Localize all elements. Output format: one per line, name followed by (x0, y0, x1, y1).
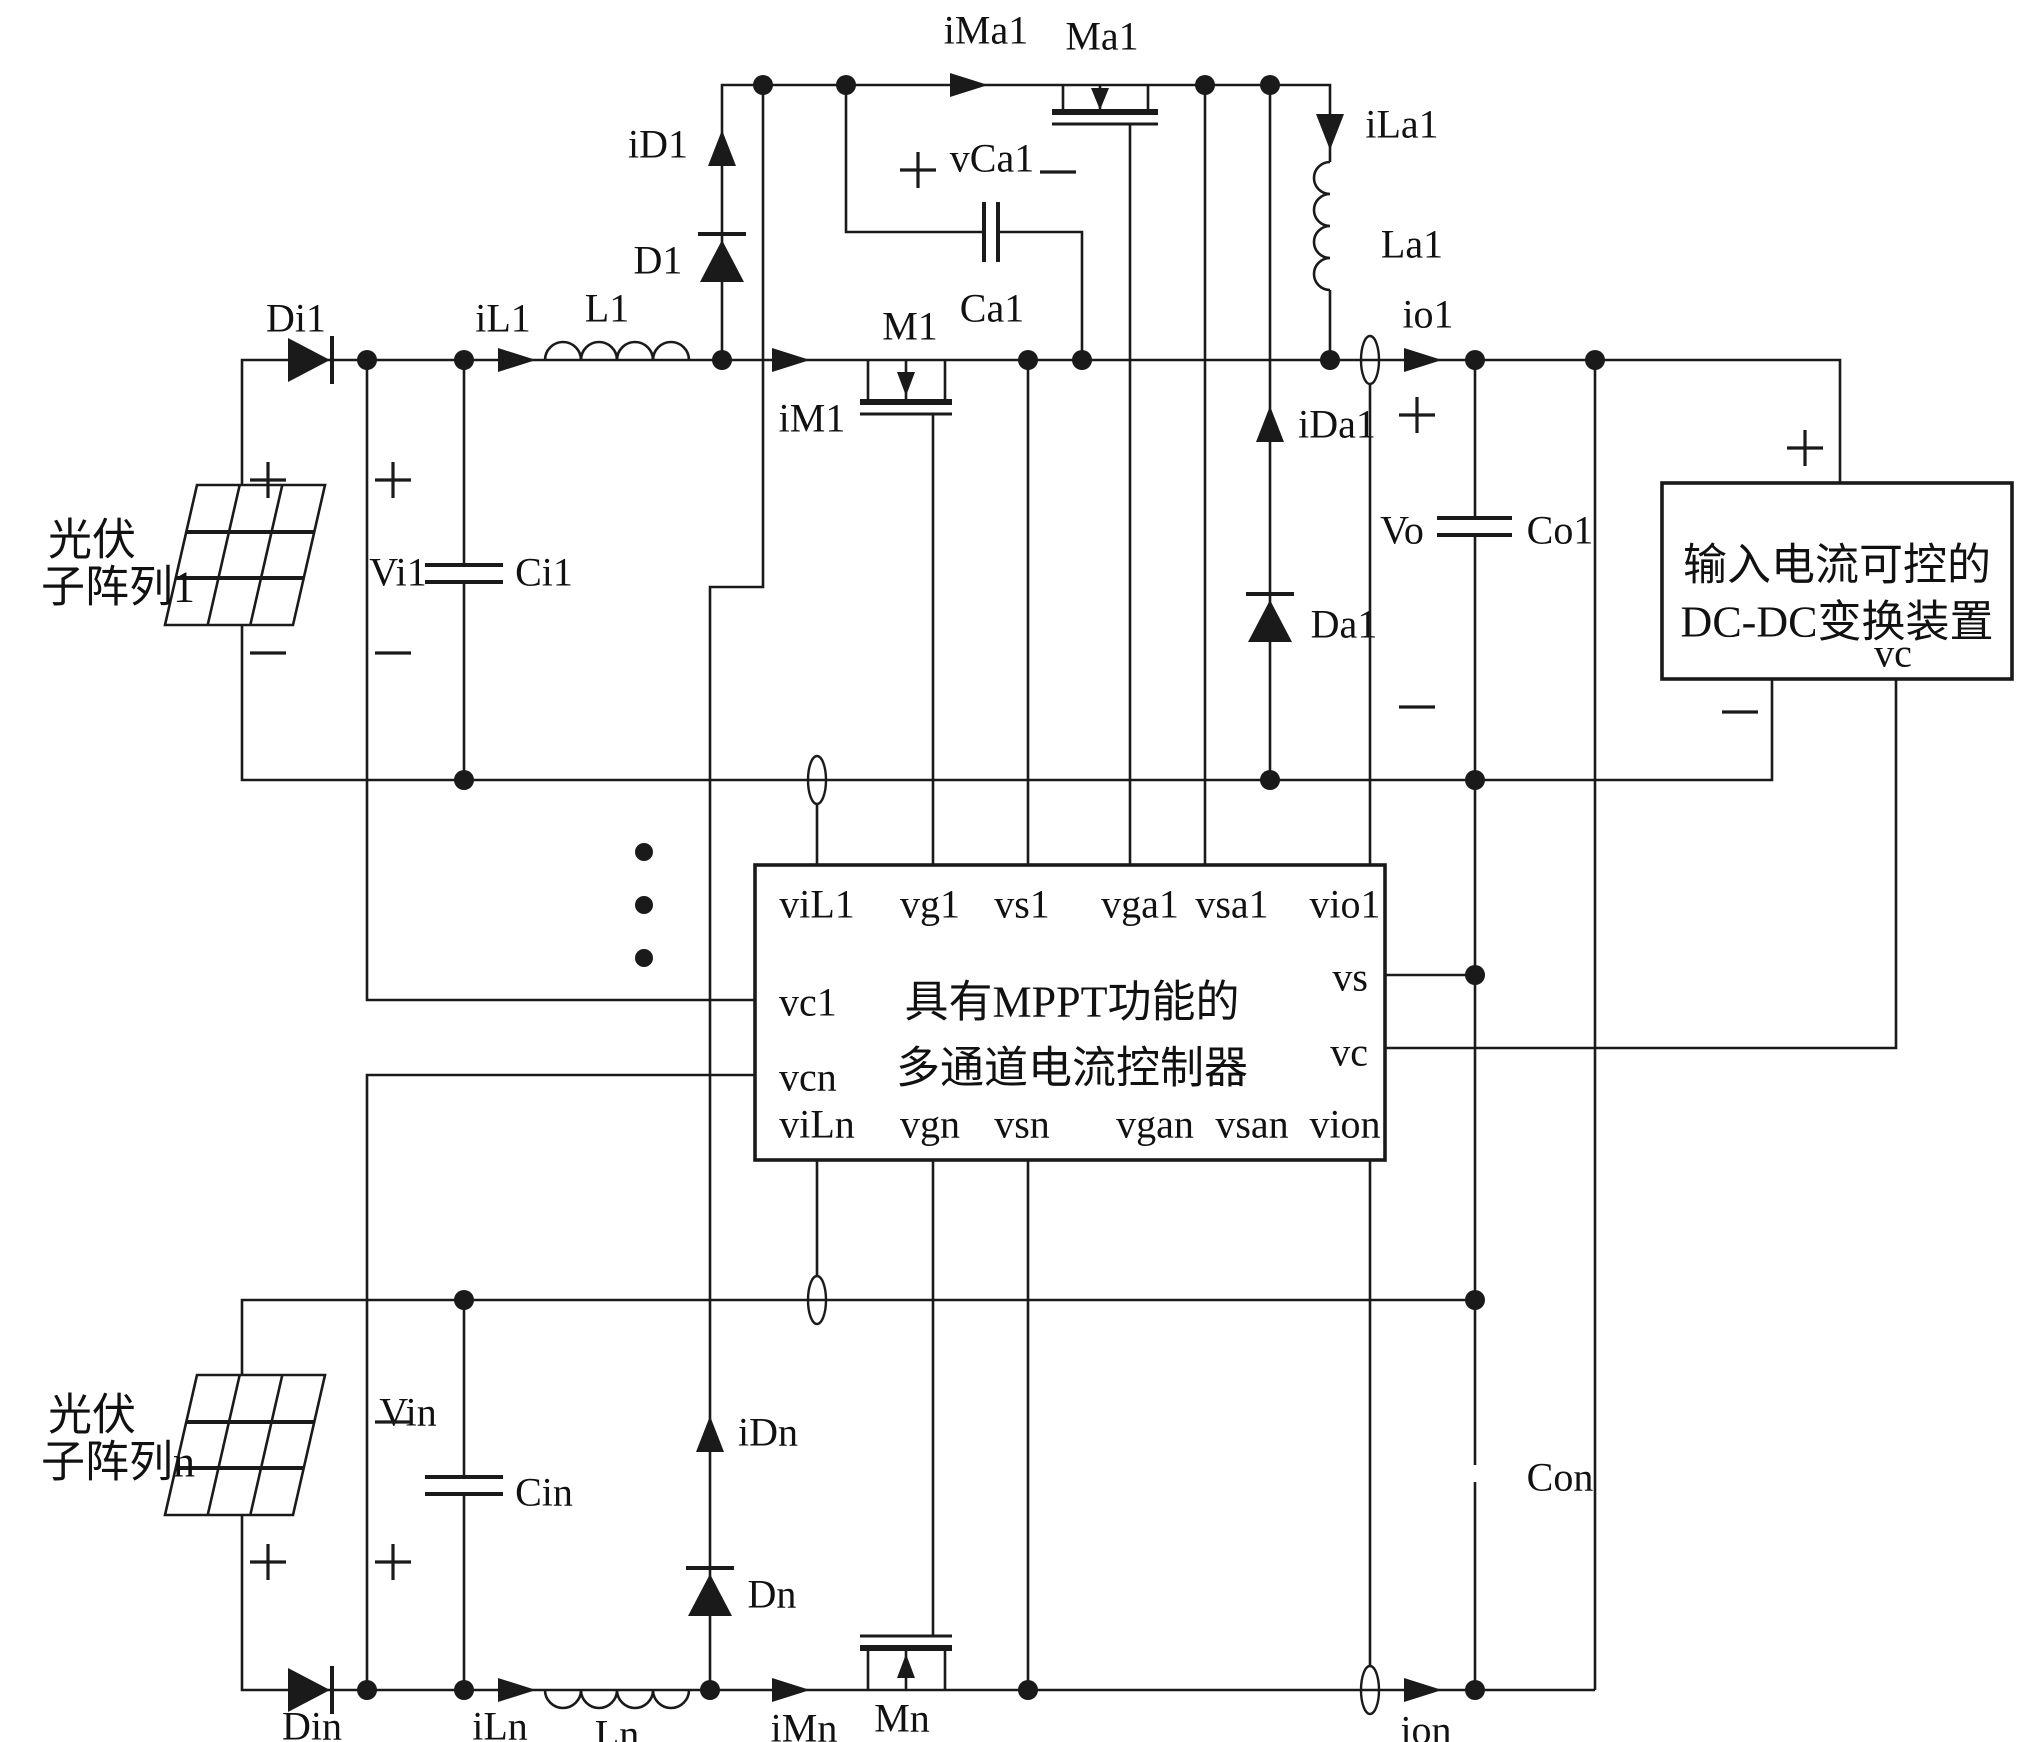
ion-label: ion (1400, 1708, 1451, 1742)
dcdc-box: 输入电流可控的 DC-DC变换装置 vc (1662, 430, 2012, 712)
cin-label: Cin (515, 1470, 573, 1515)
circuit-diagram: 光伏 子阵列1 光伏 子阵列n Di1 Vi1 Ci1 iL1 L1 (0, 0, 2019, 1742)
rail-return-n (242, 1300, 1475, 1375)
la1-label: La1 (1381, 222, 1443, 267)
diode-Da1 (1246, 594, 1294, 642)
rail-top-main (242, 360, 1840, 485)
pin-viL1: viL1 (779, 882, 855, 927)
dn-label: Dn (748, 1572, 797, 1617)
schematic-page: 光伏 子阵列1 光伏 子阵列n Di1 Vi1 Ci1 iL1 L1 (0, 0, 2019, 1742)
iL1-label: iL1 (475, 296, 531, 341)
pin-vs1: vs1 (994, 882, 1050, 927)
pv1-label-line2: 子阵列1 (41, 563, 195, 612)
diode-Dn (686, 1568, 734, 1616)
iDn-arrow (696, 1416, 724, 1452)
ln-label: Ln (595, 1712, 639, 1742)
pin-vg1: vg1 (900, 882, 960, 927)
pin-vc: vc (1330, 1030, 1368, 1075)
da1-label: Da1 (1311, 602, 1378, 647)
iMn-label: iMn (771, 1706, 838, 1742)
iMa1-arrow (950, 73, 988, 97)
iDa1-arrow (1256, 406, 1284, 442)
vc-line (1385, 679, 1896, 1048)
dcdc-vc-label: vc (1874, 631, 1912, 676)
pin-vgn: vgn (900, 1102, 960, 1147)
vo-label: Vo (1380, 508, 1424, 553)
pin-vio1: vio1 (1309, 882, 1380, 927)
controller-box: viL1 vg1 vs1 vga1 vsa1 vio1 vc1 vcn vs v… (755, 679, 1896, 1324)
m1-label: M1 (882, 304, 938, 349)
io1-label: io1 (1402, 292, 1453, 337)
iLn-label: iLn (472, 1704, 528, 1742)
co1-label: Co1 (1527, 508, 1594, 553)
pv1-label-line1: 光伏 (48, 516, 136, 565)
inductor-L1 (545, 342, 689, 360)
iLa1-arrow (1316, 114, 1344, 150)
pin-vsn: vsn (994, 1102, 1050, 1147)
pin-vga1: vga1 (1101, 882, 1179, 927)
ci1-label: Ci1 (515, 550, 573, 595)
iMn-arrow (772, 1678, 810, 1702)
aux-circuit-1: iMa1 Ma1 vCa1 Ca1 iLa1 La1 iDa1 (846, 8, 1443, 866)
controller-title-line2: 多通道电流控制器 (896, 1044, 1248, 1093)
iDn-label: iDn (738, 1410, 798, 1455)
plus-sign-vca1 (900, 152, 936, 188)
pvn-label-line1: 光伏 (48, 1391, 136, 1440)
d1-branch: iD1 D1 (628, 122, 746, 283)
vca1-label: vCa1 (950, 136, 1034, 181)
di1-label: Di1 (266, 296, 326, 341)
ion-arrow (1404, 1678, 1442, 1702)
pin-vsa1: vsa1 (1195, 882, 1268, 927)
iM1-arrow (772, 348, 810, 372)
pin-vcn: vcn (779, 1055, 837, 1100)
pvn-label-line2: 子阵列n (41, 1438, 195, 1487)
pin-viLn: viLn (779, 1102, 855, 1147)
channel1-input: Di1 Vi1 Ci1 iL1 L1 (250, 286, 755, 1001)
plus-sign-vo (1399, 397, 1435, 433)
io1-arrow (1404, 348, 1442, 372)
pin-vion: vion (1309, 1102, 1380, 1147)
more-channels-ellipsis (635, 843, 653, 967)
iDa1-label: iDa1 (1298, 402, 1376, 447)
l1-label: L1 (585, 286, 629, 331)
pv-array-n: 光伏 子阵列n (41, 1375, 325, 1515)
con-label: Con (1527, 1455, 1594, 1500)
plus-sign-dcdc (1787, 430, 1823, 466)
mn-label: Mn (874, 1696, 930, 1741)
pin-vs: vs (1332, 955, 1368, 1000)
rail-return-1 (242, 625, 1772, 780)
vi1-label: Vi1 (369, 550, 427, 595)
inductor-La1 (1314, 162, 1330, 290)
mosfet-Ma1 (1052, 85, 1158, 124)
rail-aux-top (722, 85, 1330, 360)
plus-sign-pvn (250, 1544, 286, 1580)
iD1-arrow (708, 130, 736, 166)
inductor-Ln (545, 1690, 689, 1708)
plus-sign-vi1 (375, 462, 411, 498)
dcdc-title-line1: 输入电流可控的 (1683, 541, 1991, 590)
pv-array-1: 光伏 子阵列1 (41, 485, 325, 625)
d1-label: D1 (634, 238, 683, 283)
pin-vsan: vsan (1215, 1102, 1288, 1147)
ma1-label: Ma1 (1065, 14, 1138, 59)
diode-D1 (698, 234, 746, 282)
iM1-label: iM1 (779, 396, 846, 441)
vin-label: Vin (379, 1390, 437, 1435)
rail-bottom-main (242, 1515, 1595, 1690)
vi1-sense-line (367, 360, 755, 1000)
diode-Di1 (288, 336, 332, 384)
pin-vgan: vgan (1116, 1102, 1194, 1147)
channeln: Vin Cin Din iLn Ln iDn Dn iMn (250, 1075, 1593, 1742)
pin-vc1: vc1 (779, 980, 837, 1025)
plus-sign-vin (375, 1544, 411, 1580)
controller-title-line1: 具有MPPT功能的 (905, 978, 1240, 1027)
iD1-label: iD1 (628, 122, 688, 167)
iMa1-label: iMa1 (944, 8, 1028, 53)
vin-sense-line (367, 1075, 755, 1690)
ca1-label: Ca1 (960, 286, 1024, 331)
iLa1-label: iLa1 (1365, 102, 1438, 147)
din-label: Din (282, 1704, 342, 1742)
dcdc-title-line2: DC-DC变换装置 (1681, 598, 1994, 647)
iL1-arrow (498, 348, 536, 372)
iLn-arrow (498, 1678, 536, 1702)
mosfet-Mn (860, 1636, 952, 1690)
